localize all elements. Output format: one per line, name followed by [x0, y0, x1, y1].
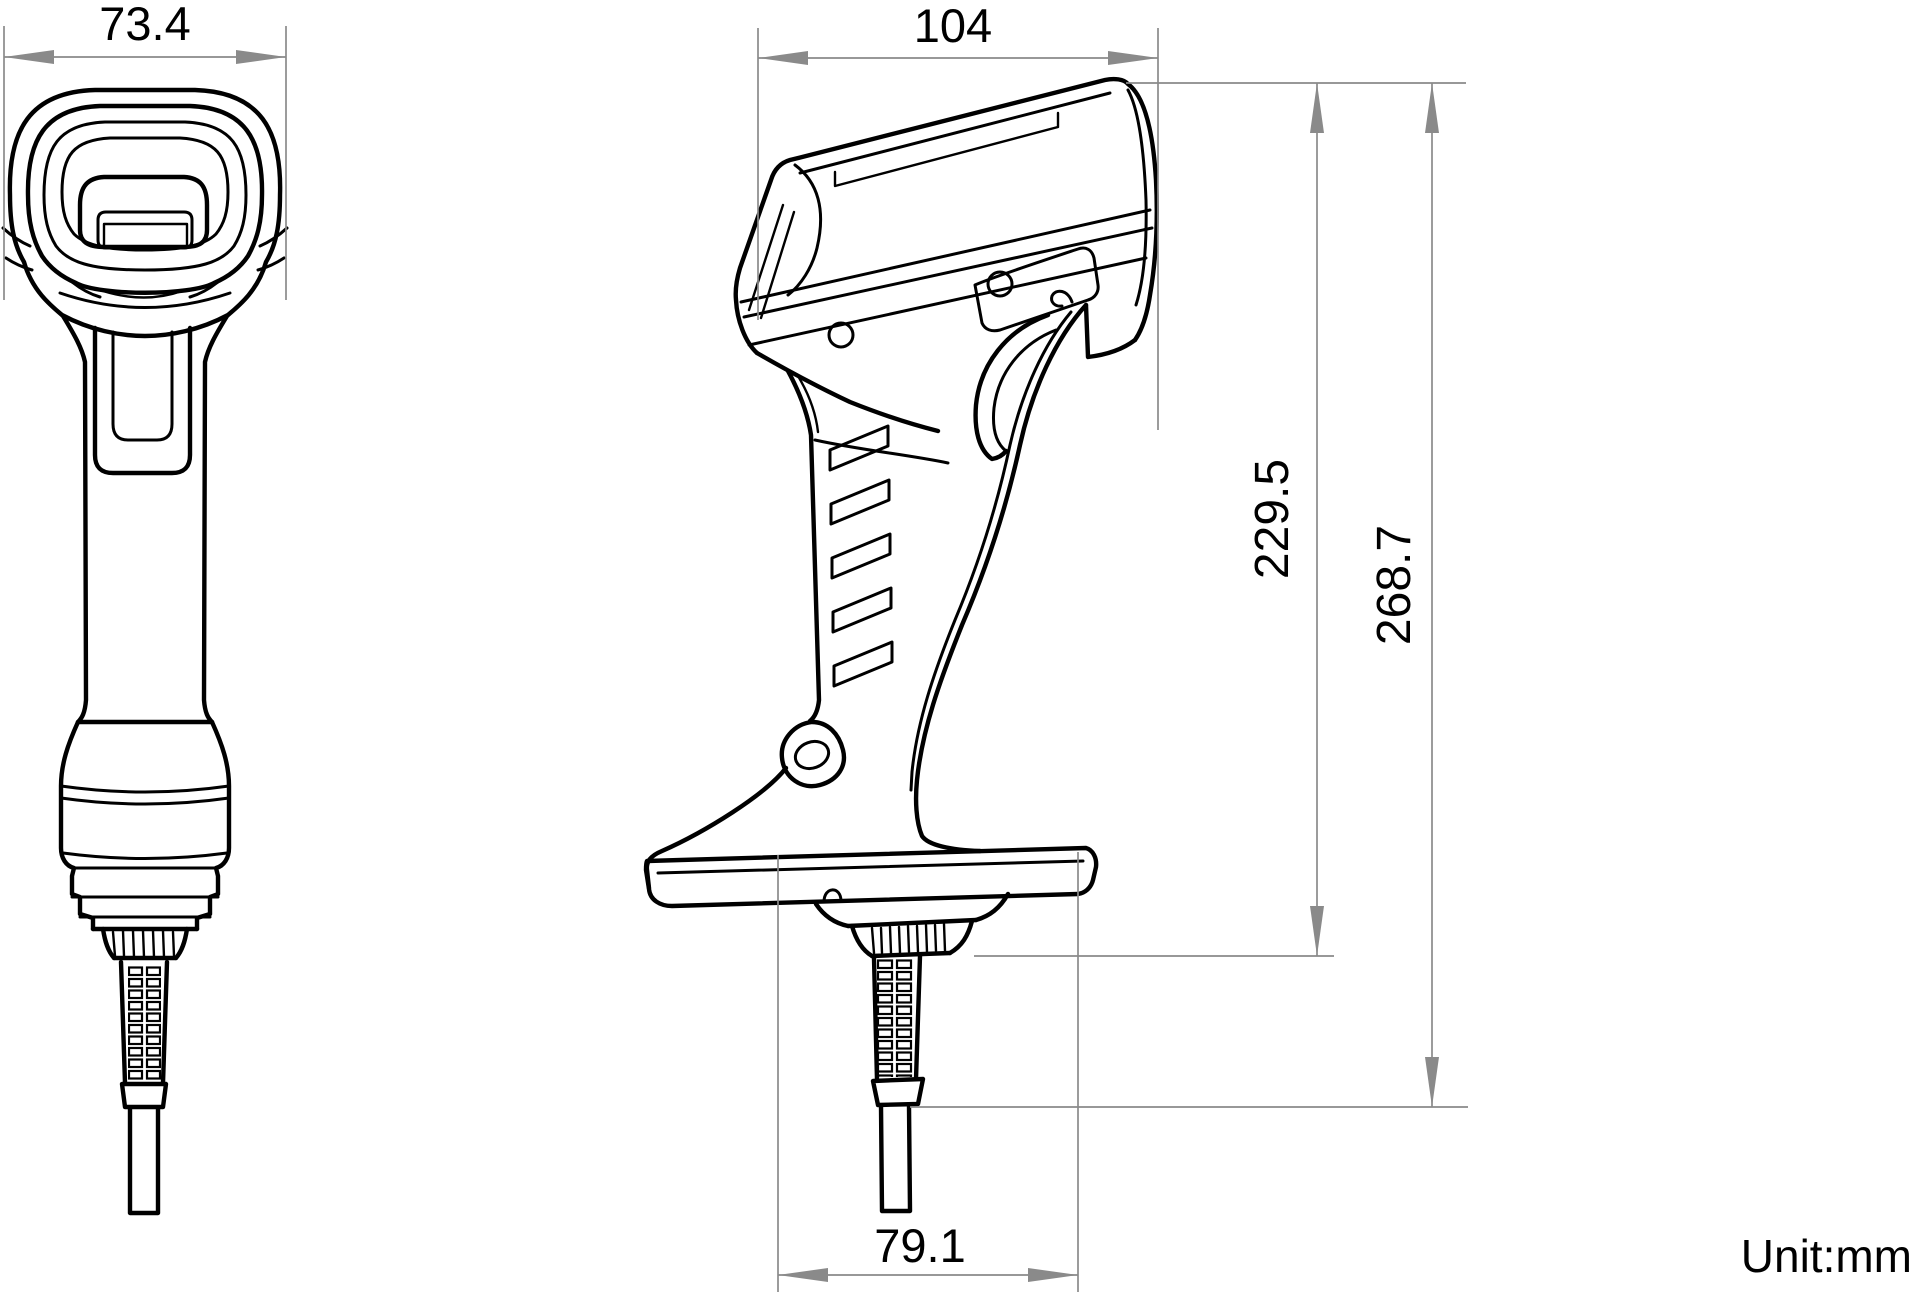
- dim-body-height: 229.5: [974, 83, 1466, 956]
- front-cable-flex-grid: [128, 966, 161, 1081]
- dim-total-height: 268.7: [910, 83, 1468, 1107]
- front-trigger: [95, 328, 190, 473]
- front-cable-bushing: [122, 1084, 166, 1107]
- dim-base-width-value: 79.1: [874, 1219, 965, 1272]
- dim-side-depth: 104: [758, 0, 1158, 430]
- side-view-drawing: [646, 79, 1157, 1211]
- side-cable-flex-grid: [877, 959, 913, 1077]
- side-cable-bushing: [873, 1079, 923, 1105]
- side-screw-hole-lower: [829, 323, 853, 347]
- dim-front-width: 73.4: [4, 0, 286, 300]
- front-head: [3, 90, 287, 336]
- side-trigger: [976, 315, 1056, 459]
- front-view-drawing: [3, 90, 287, 1213]
- front-handle: [63, 316, 227, 722]
- front-base: [61, 722, 229, 929]
- dim-body-height-value: 229.5: [1246, 459, 1299, 579]
- side-cable: [873, 956, 923, 1211]
- dim-base-width: 79.1: [778, 852, 1078, 1292]
- dim-side-depth-value: 104: [914, 0, 992, 52]
- front-cable: [121, 962, 167, 1213]
- scanner-dimension-svg: 73.4 104 229.5 268.7 79.1 Unit:mm: [0, 0, 1920, 1293]
- unit-label: Unit:mm: [1741, 1230, 1912, 1282]
- side-handle: [788, 305, 1086, 851]
- technical-drawing-canvas: 73.4 104 229.5 268.7 79.1 Unit:mm: [0, 0, 1920, 1293]
- dim-front-width-value: 73.4: [99, 0, 190, 50]
- side-base: [646, 768, 1096, 926]
- side-lanyard-loop: [782, 722, 844, 786]
- dim-total-height-value: 268.7: [1368, 525, 1421, 645]
- front-strain-relief: [103, 929, 187, 958]
- side-grip-ribs: [830, 426, 892, 686]
